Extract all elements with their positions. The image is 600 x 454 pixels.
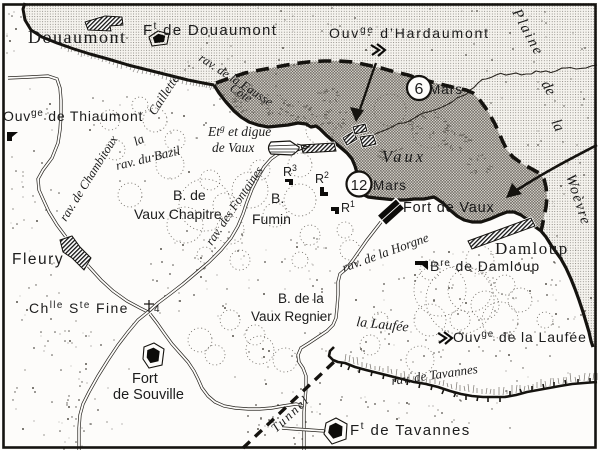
svg-text:Ouvge de la Laufée: Ouvge de la Laufée bbox=[453, 329, 587, 346]
svg-text:Vaux: Vaux bbox=[382, 147, 426, 166]
svg-text:Etg et digue: Etg et digue bbox=[207, 124, 271, 139]
svg-text:12: 12 bbox=[351, 177, 368, 194]
svg-text:Chlle Ste Fine: Chlle Ste Fine bbox=[29, 300, 129, 317]
svg-text:Vaux Regnier: Vaux Regnier bbox=[251, 309, 332, 324]
svg-text:Mars: Mars bbox=[429, 82, 463, 97]
svg-text:de Vaux: de Vaux bbox=[212, 140, 254, 155]
svg-text:Fort de Vaux: Fort de Vaux bbox=[403, 200, 495, 216]
svg-text:4: 4 bbox=[154, 304, 160, 315]
svg-text:6: 6 bbox=[415, 81, 424, 98]
svg-text:B. de la: B. de la bbox=[278, 291, 324, 306]
svg-text:de Souville: de Souville bbox=[113, 387, 184, 403]
svg-text:Fumin: Fumin bbox=[252, 211, 291, 227]
svg-text:Vaux Chapitre: Vaux Chapitre bbox=[134, 206, 222, 222]
svg-text:Ft de Douaumont: Ft de Douaumont bbox=[143, 20, 277, 39]
svg-text:Mars: Mars bbox=[373, 178, 407, 193]
svg-text:Fort: Fort bbox=[132, 371, 158, 387]
svg-text:Ouvge d’Hardaumont: Ouvge d’Hardaumont bbox=[329, 25, 490, 42]
svg-text:Fleury: Fleury bbox=[12, 251, 64, 268]
svg-text:Douaumont: Douaumont bbox=[28, 27, 127, 47]
svg-text:B.: B. bbox=[271, 190, 284, 206]
svg-text:Damloup: Damloup bbox=[495, 239, 569, 258]
svg-text:Ft de Tavannes: Ft de Tavannes bbox=[350, 420, 471, 439]
svg-text:B. de: B. de bbox=[173, 187, 206, 203]
svg-text:Ouvge de Thiaumont: Ouvge de Thiaumont bbox=[3, 108, 143, 125]
